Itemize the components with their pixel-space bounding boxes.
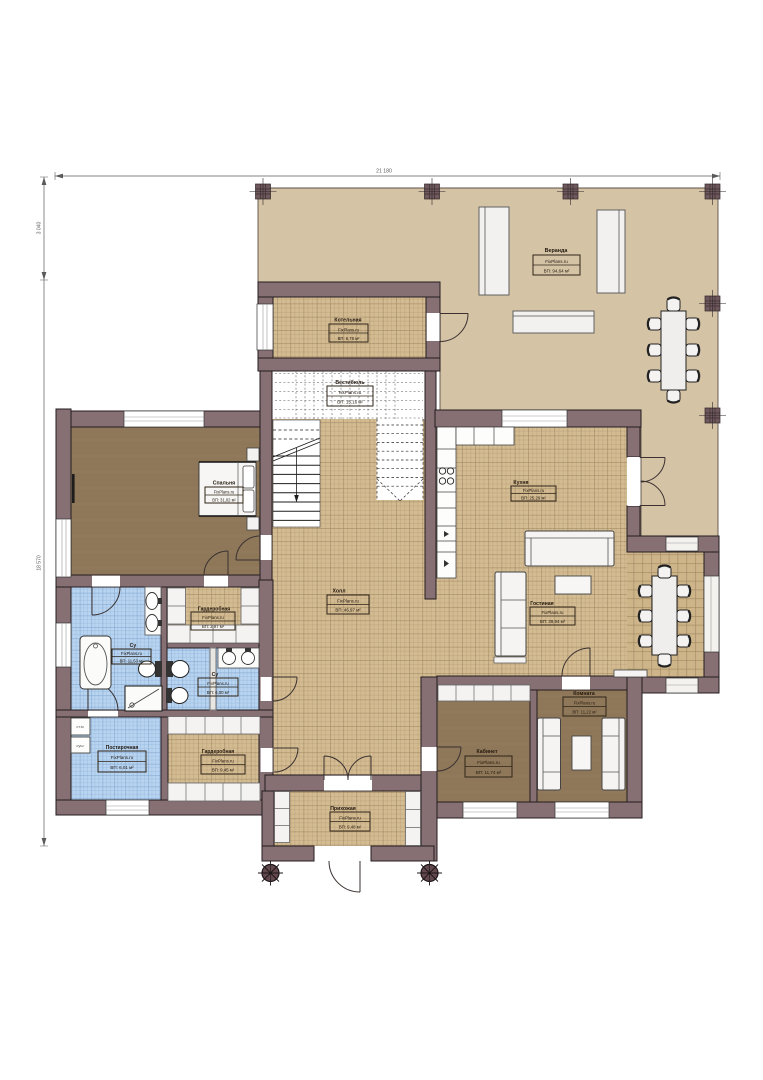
svg-text:Су: Су [130,643,137,649]
svg-text:FixPlans.ru: FixPlans.ru [338,327,360,332]
svg-text:FixPlans.ru: FixPlans.ru [212,758,234,763]
svg-text:ВП: 46,97 м²: ВП: 46,97 м² [335,608,361,613]
svg-text:ВП: 11,53 м²: ВП: 11,53 м² [120,659,144,664]
svg-text:Спальня: Спальня [213,481,235,487]
svg-text:ВП: 15,16 м²: ВП: 15,16 м² [337,400,363,405]
svg-text:FixPlans.ru: FixPlans.ru [121,651,143,656]
svg-text:Кабинет: Кабинет [477,748,498,755]
svg-text:Постирочная: Постирочная [106,745,139,751]
svg-text:18 570: 18 570 [37,555,43,571]
svg-text:FixPlans.ru: FixPlans.ru [574,700,596,705]
svg-text:Веранда: Веранда [545,248,569,254]
svg-text:FixPlans.ru: FixPlans.ru [207,681,229,686]
svg-text:FixPlans.ru: FixPlans.ru [111,755,134,760]
svg-text:21 180: 21 180 [376,169,392,175]
svg-text:ВП: 9,48 м²: ВП: 9,48 м² [339,825,362,830]
svg-text:Гостиная: Гостиная [530,601,553,607]
svg-text:3 040: 3 040 [37,222,43,235]
svg-text:ВП: 11,22 м²: ВП: 11,22 м² [572,710,597,715]
svg-text:Холл: Холл [332,589,345,595]
svg-text:FixPlans.ru: FixPlans.ru [202,615,224,620]
svg-text:ВП: 39,94 м²: ВП: 39,94 м² [540,619,566,624]
svg-text:FixPlans.ru: FixPlans.ru [339,390,362,395]
svg-text:ВП: 9,45 м²: ВП: 9,45 м² [212,768,235,773]
svg-text:ВП: 94,64 м²: ВП: 94,64 м² [544,269,570,274]
svg-text:FixPlans.ru: FixPlans.ru [477,760,500,765]
svg-text:Прихожая: Прихожая [330,806,356,812]
svg-text:FixPlans.ru: FixPlans.ru [542,610,565,615]
svg-text:ст.м: ст.м [76,724,84,729]
svg-text:FixPlans.ru: FixPlans.ru [339,815,361,820]
svg-text:ВП: 6,78 м²: ВП: 6,78 м² [338,336,360,341]
svg-text:ВП: 31,02 м²: ВП: 31,02 м² [212,498,236,503]
svg-text:ВП: 6,00 м²: ВП: 6,00 м² [207,690,230,695]
svg-text:FixPlans.ru: FixPlans.ru [337,598,360,603]
svg-text:FixPlans.ru: FixPlans.ru [523,488,545,493]
svg-text:Су: Су [212,672,219,678]
svg-text:Котельная: Котельная [334,318,361,324]
svg-text:Кухня: Кухня [513,480,528,486]
svg-text:Вестибюль: Вестибюль [335,379,364,386]
svg-text:ВП: 3,97 м²: ВП: 3,97 м² [202,624,225,629]
svg-text:ВП: 6,01 м²: ВП: 6,01 м² [110,765,134,770]
svg-text:Гардеробная: Гардеробная [198,606,230,613]
svg-text:ВП: 25,29 м²: ВП: 25,29 м² [521,496,546,501]
svg-text:Гардеробная: Гардеробная [202,748,234,755]
svg-text:FixPlans.ru: FixPlans.ru [545,259,568,264]
svg-text:FixPlans.ru: FixPlans.ru [214,490,234,495]
svg-text:ВП: 11,74 м²: ВП: 11,74 м² [476,770,502,775]
svg-text:Комната: Комната [573,691,595,697]
svg-text:суш: суш [76,743,83,748]
